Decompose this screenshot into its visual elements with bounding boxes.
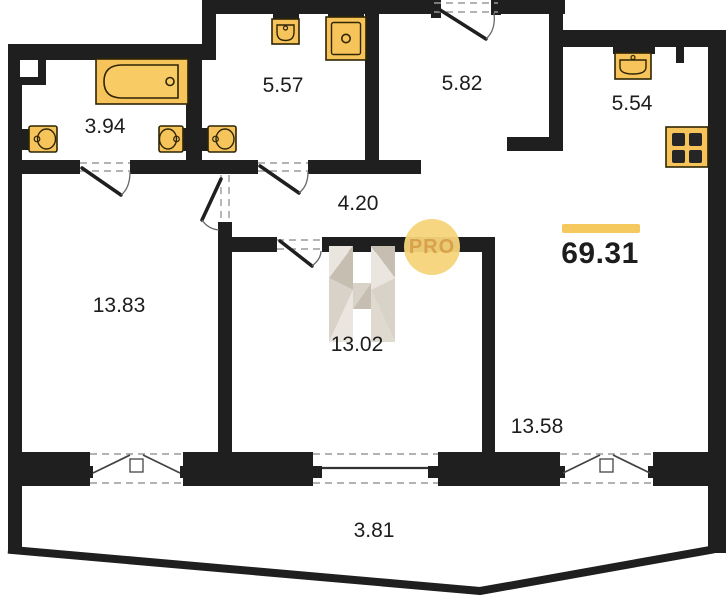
door-icon [260, 166, 308, 193]
toilet-icon [208, 126, 236, 152]
toilet-icon [159, 126, 183, 152]
floor-plan-page: PRO 3.94 5.57 5.82 5.54 4.20 13.83 13.02… [0, 0, 726, 600]
shower-tray-icon [326, 17, 366, 60]
windows [93, 455, 650, 473]
room-area-label-bathroom: 3.94 [85, 115, 126, 139]
casement-window-icon [93, 455, 180, 473]
wall-niche [684, 47, 708, 63]
room-area-label-corridor: 4.20 [338, 192, 379, 216]
door-icon [280, 241, 321, 266]
stove-icon [666, 127, 708, 167]
pro-watermark-label: PRO [409, 236, 455, 259]
door-icon [82, 168, 130, 195]
room-area-label-shower-room: 5.57 [263, 74, 304, 98]
casement-window-icon [563, 455, 650, 473]
room-area-label-kitchen: 5.54 [612, 92, 653, 116]
kitchen-sink-icon [615, 53, 651, 79]
pro-watermark-badge: PRO [404, 219, 460, 275]
room-area-label-balcony: 3.81 [354, 519, 395, 543]
total-area-value: 69.31 [561, 237, 639, 271]
bathtub-icon [96, 59, 188, 104]
sink-icon [272, 19, 299, 44]
total-area-accent-bar [562, 224, 640, 233]
balcony-railing [12, 550, 710, 591]
wardrobe-watermark [329, 246, 395, 342]
room-area-label-bedroom: 13.02 [331, 333, 384, 357]
room-area-label-hallway: 5.82 [442, 72, 483, 96]
wall-niche [20, 60, 38, 77]
room-area-label-living-room: 13.83 [93, 294, 146, 318]
room-area-label-room: 13.58 [511, 415, 564, 439]
toilet-icon [29, 126, 57, 152]
